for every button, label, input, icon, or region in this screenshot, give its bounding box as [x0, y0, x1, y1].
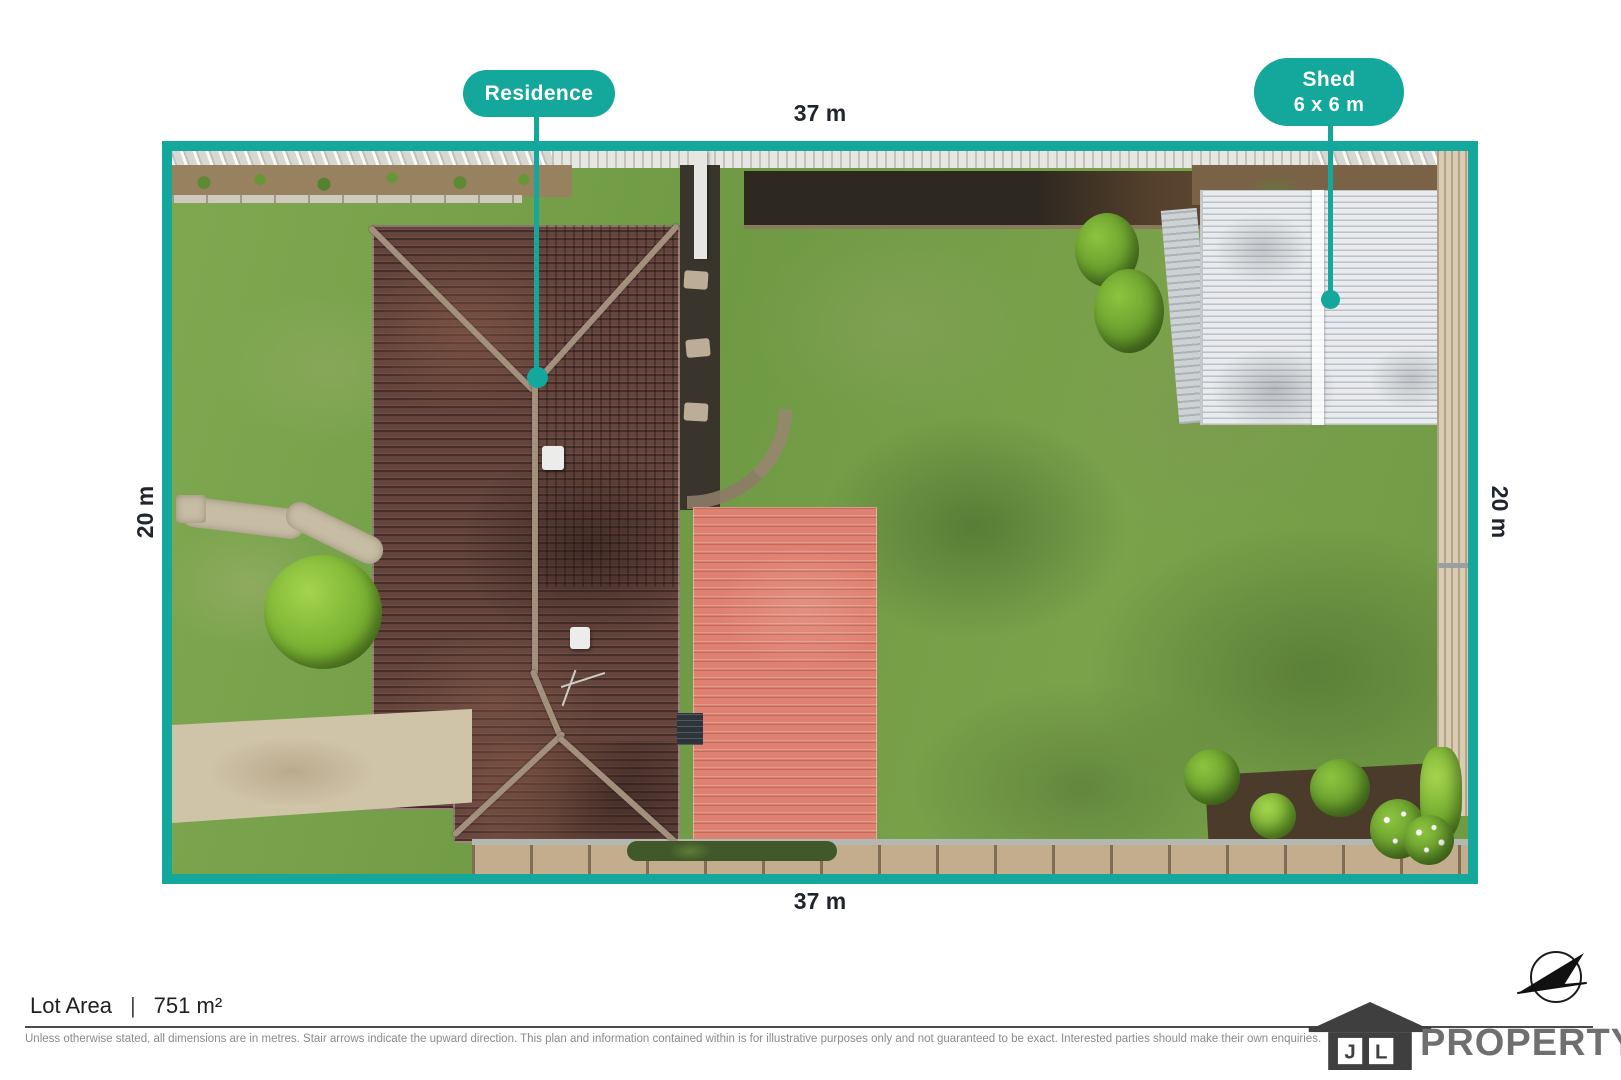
shed-callout-line	[1328, 124, 1333, 299]
fence-rail	[1437, 563, 1468, 568]
side-fence	[1437, 151, 1468, 816]
dimension-bottom: 37 m	[162, 888, 1478, 915]
residence-roof-face	[537, 225, 680, 587]
front-hedge	[627, 841, 837, 861]
tree	[264, 555, 382, 669]
patio-roof	[693, 507, 877, 843]
residence-callout-dot	[527, 367, 548, 388]
residence-callout-pill: Residence	[463, 70, 615, 117]
flowering-bush	[1404, 815, 1454, 865]
downpipe	[694, 151, 707, 259]
shed-label: Shed	[1303, 67, 1356, 92]
aerial-photo	[172, 151, 1468, 874]
compass-icon	[1516, 943, 1592, 1009]
garden-bed-top-left	[172, 165, 572, 197]
bush	[1310, 759, 1370, 817]
lot-area-separator: |	[130, 993, 136, 1019]
residence-roof-extension	[453, 741, 680, 843]
bush	[1094, 269, 1164, 353]
residence-callout-line	[534, 114, 539, 370]
front-walkway	[472, 839, 1468, 874]
logo-initial-j: J	[1344, 1041, 1355, 1063]
solar-panel	[677, 713, 703, 745]
garden-curb	[172, 195, 522, 203]
logo-initial-l: L	[1375, 1041, 1387, 1063]
shed-size-label: 6 x 6 m	[1294, 93, 1365, 117]
stepping-stone	[683, 270, 708, 290]
shed-roof-seam	[1312, 190, 1324, 425]
jl-logo-house-icon: J L	[1306, 1000, 1434, 1070]
bush	[1250, 793, 1296, 839]
path-pad	[176, 495, 206, 523]
lot-area-label: Lot Area	[30, 993, 112, 1019]
shed-callout-pill: Shed 6 x 6 m	[1254, 58, 1404, 126]
residence-label: Residence	[485, 81, 594, 106]
lot-area-value: 751 m²	[154, 993, 222, 1019]
roof-vent	[570, 627, 590, 649]
roof-ridge	[532, 385, 538, 675]
dimension-right: 20 m	[1486, 462, 1514, 562]
stepping-stone	[685, 338, 710, 358]
brand-name: PROPERTY	[1420, 1022, 1621, 1065]
bush	[1184, 749, 1240, 805]
disclaimer-text: Unless otherwise stated, all dimensions …	[25, 1033, 1321, 1045]
shed-callout-dot	[1321, 290, 1340, 309]
aerial-photo-frame	[162, 141, 1478, 884]
roof-vent	[542, 446, 564, 470]
lot-area-row: Lot Area | 751 m²	[30, 993, 222, 1019]
dimension-left: 20 m	[131, 462, 159, 562]
